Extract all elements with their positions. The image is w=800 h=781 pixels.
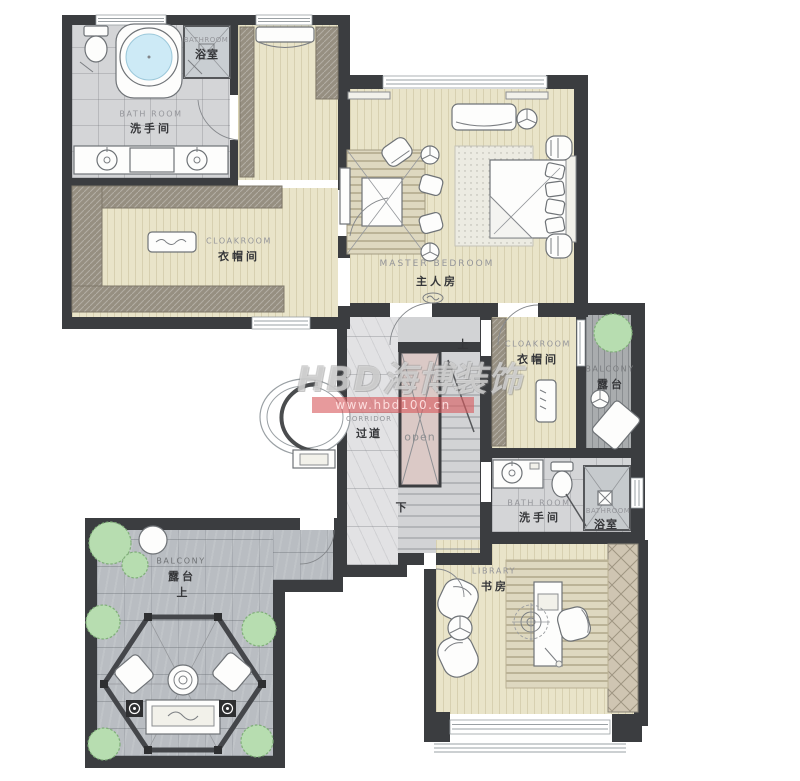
bathtub — [116, 24, 182, 98]
label-cloakroom-second-en: CLOAKROOM — [505, 340, 571, 349]
vanity-second — [493, 460, 543, 488]
bookshelf — [608, 544, 638, 712]
label-shower-second-cn: 浴室 — [594, 516, 618, 532]
curtain-left — [348, 92, 390, 99]
label-shower-second-en: BATHROOM — [586, 507, 631, 515]
library-armchairs — [433, 574, 483, 681]
label-corridor-cn: 过道 — [356, 425, 382, 441]
label-shower-main-cn: 浴室 — [195, 46, 219, 62]
decor-cloud — [423, 293, 443, 303]
label-shower-main-en: BATHROOM — [184, 36, 229, 44]
label-cloakroom-main-cn: 衣帽间 — [218, 248, 260, 264]
label-balcony-right-cn: 露台 — [597, 376, 625, 392]
label-balcony-lower-cn: 露台 — [168, 568, 196, 584]
curtain-right — [506, 92, 548, 99]
label-library-en: LIBRARY — [472, 567, 516, 576]
watermark-url-bar: www.hbd100.cn — [312, 397, 474, 413]
label-bathroom-main-en: BATH ROOM — [119, 110, 182, 119]
vanity-main — [74, 146, 228, 174]
toilet-main — [80, 26, 108, 72]
master-bed — [490, 156, 576, 242]
label-master-bedroom-cn: 主人房 — [416, 273, 458, 289]
label-bathroom-second-en: BATH ROOM — [507, 499, 570, 508]
label-bathroom-main-cn: 洗手间 — [130, 120, 172, 136]
label-balcony-lower-en: BALCONY — [156, 557, 205, 566]
label-corridor-en: CORRIDOR — [346, 415, 392, 423]
toilet-second — [551, 462, 573, 497]
label-balcony-right-en: BALCONY — [585, 365, 634, 374]
label-stair-up: 上 — [458, 336, 469, 352]
label-bathroom-second-cn: 洗手间 — [519, 509, 561, 525]
label-stair-void: open — [404, 431, 435, 444]
watermark-brand: HBD海博装饰 — [297, 352, 523, 401]
label-master-bedroom-en: MASTER BEDROOM — [380, 259, 495, 269]
wardrobe-passage — [240, 27, 338, 177]
gazebo-furniture — [113, 651, 253, 734]
master-bench — [452, 104, 537, 130]
watermark-url: www.hbd100.cn — [335, 398, 450, 412]
label-balcony-lower-up: 上 — [177, 584, 188, 600]
label-cloakroom-main-en: CLOAKROOM — [206, 237, 272, 246]
tv-seating-rug — [340, 150, 425, 254]
label-stair-down: 下 — [396, 499, 407, 515]
floor-plan: BATH ROOM 洗手间 BATHROOM 浴室 CLOAKROOM 衣帽间 … — [0, 0, 800, 781]
label-cloakroom-second-cn: 衣帽间 — [517, 351, 559, 367]
label-library-cn: 书房 — [481, 578, 509, 594]
